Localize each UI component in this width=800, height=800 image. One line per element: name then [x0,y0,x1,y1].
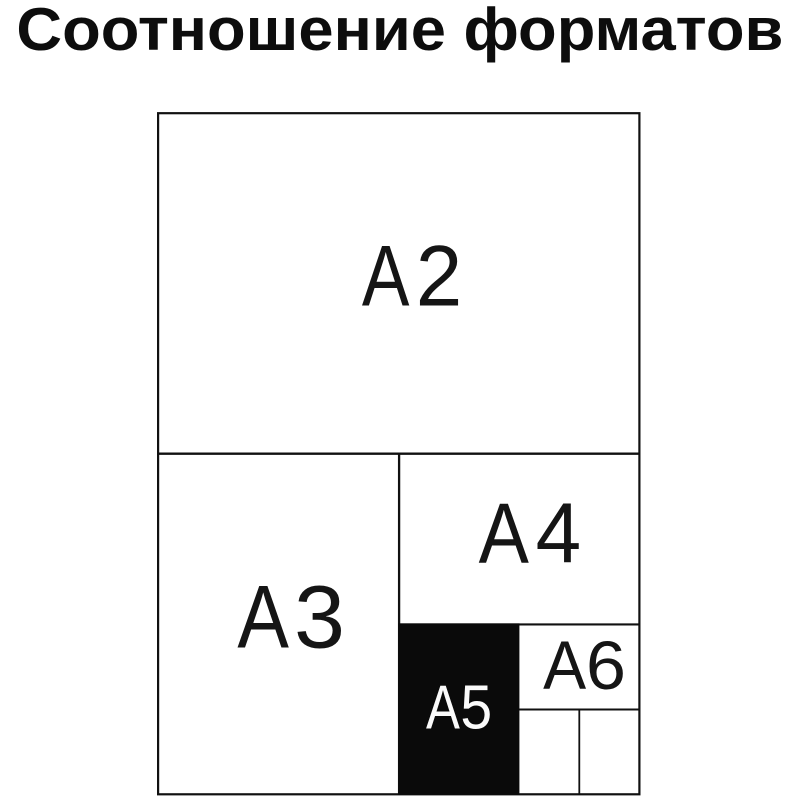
svg-text:3: 3 [294,567,345,667]
svg-text:6: 6 [586,627,626,704]
svg-text:Соотношение форматов: Соотношение форматов [16,0,783,63]
svg-text:2: 2 [416,229,463,325]
svg-text:5: 5 [460,674,492,743]
svg-text:A: A [426,674,460,743]
svg-text:4: 4 [536,487,582,582]
svg-text:A: A [479,487,530,582]
svg-text:A: A [362,229,410,325]
svg-text:A: A [237,567,289,667]
svg-text:A: A [543,627,586,704]
